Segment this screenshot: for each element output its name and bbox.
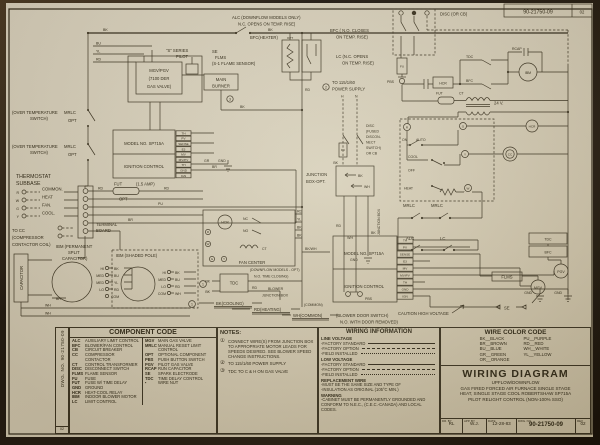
component-row: LCLIMIT CONTROL bbox=[72, 400, 141, 405]
notes-title: NOTES: bbox=[220, 330, 315, 336]
wiring-diagram-title: WIRING DIAGRAM bbox=[441, 366, 590, 380]
title-block: WIRE COLOR CODE BK__BLACK BR__BROWN BU__… bbox=[440, 327, 591, 434]
wiring-diagram-title-panel: WIRING DIAGRAM UPFLOW/DOWNFLOW GAS FIRED… bbox=[441, 366, 590, 419]
approval-stamp-row: DR. BYRL APP. BYW.J. DATE12-28-83 DWG. N… bbox=[441, 419, 590, 433]
wire-color-entry: WH__WHITE bbox=[523, 346, 551, 351]
wire-color-code-title: WIRE COLOR CODE bbox=[441, 328, 590, 336]
wire-color-entry: YL__YELLOW bbox=[523, 352, 551, 357]
app-by-cell: APP. BYW.J. bbox=[463, 419, 487, 433]
drawing-number-strip: DWG. NO. 90-21750-09 02 bbox=[55, 327, 69, 434]
line-sample-dot-thin bbox=[361, 374, 435, 375]
component-code-title: COMPONENT CODE bbox=[70, 328, 216, 338]
notes-panel: NOTES: ①CONNECT WIRE(S) FROM JUNCTION BO… bbox=[217, 327, 318, 434]
note-item: ②TO 115/1/60 POWER SUPPLY bbox=[220, 361, 315, 367]
note-item: ③TDC TO C & H ON GAS VALVE bbox=[220, 369, 315, 375]
diagram-subtitle4: PILOT RELIGHT CONTROL (NON-100% SSO) bbox=[441, 397, 590, 403]
wiring-information-panel: WIRING INFORMATION LINE VOLTAGE -FACTORY… bbox=[318, 327, 440, 434]
wire-color-entry: OR__ORANGE bbox=[480, 357, 510, 362]
component-code-table: COMPONENT CODE ALCAUXILIARY LIMIT CONTRO… bbox=[69, 327, 217, 434]
wire-color-right-column: PU__PURPLE RD__RED WH__WHITE YL__YELLOW bbox=[523, 336, 551, 362]
scanned-wiring-diagram-photo: 90-21750-09 02 bbox=[0, 0, 600, 445]
dwg-no-cell: DWG. NO.90-21750-09 bbox=[517, 419, 576, 433]
side-dwg-number: DWG. NO. 90-21750-09 bbox=[60, 330, 65, 387]
line-sample-dash-thin bbox=[362, 369, 435, 370]
wire-color-code-panel: WIRE COLOR CODE BK__BLACK BR__BROWN BU__… bbox=[441, 328, 590, 366]
replacement-wire-text2: -INSULATION AS ORIGINAL (105°C MIN.) bbox=[321, 388, 437, 393]
component-code-right-column: MGVMAIN GAS VALVE MRLCMANUAL RESET LIMIT… bbox=[143, 338, 216, 405]
wire-color-left-column: BK__BLACK BR__BROWN BU__BLUE GR__GREEN O… bbox=[480, 336, 510, 362]
component-code-left-column: ALCAUXILIARY LIMIT CONTROL BFCBLOWER/FAN… bbox=[70, 338, 143, 405]
wiring-info-title: WIRING INFORMATION bbox=[321, 329, 437, 335]
dr-by-cell: DR. BYRL bbox=[441, 419, 463, 433]
date-cell: DATE12-28-83 bbox=[487, 419, 517, 433]
warning-text: -CABINET MUST BE PERMANENTLY GROUNDED AN… bbox=[321, 398, 437, 413]
legend-row: -FIELD INSTALLED bbox=[321, 372, 437, 377]
line-sample-solid-thick bbox=[368, 343, 435, 344]
side-rev: 02 bbox=[56, 426, 68, 431]
line-sample-solid-thin bbox=[368, 364, 435, 365]
line-sample-dot-thick bbox=[361, 353, 435, 354]
note-item: ①CONNECT WIRE(S) FROM JUNCTION BOX TO AP… bbox=[220, 339, 315, 359]
line-sample-dash-thick bbox=[362, 348, 435, 349]
legend-row: -FIELD INSTALLED bbox=[321, 351, 437, 356]
component-row: ▪WIRE NUT bbox=[145, 381, 215, 386]
rev-cell: REV02 bbox=[576, 419, 590, 433]
